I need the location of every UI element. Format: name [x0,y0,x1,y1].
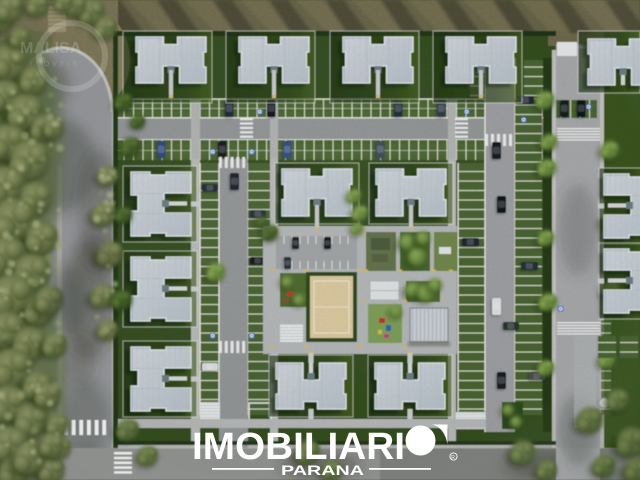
svg-text:MALISA: MALISA [20,40,82,57]
svg-text:PARANA: PARANA [281,462,364,478]
svg-text:IMOVEIS: IMOVEIS [30,61,80,68]
svg-text:R: R [451,455,455,461]
